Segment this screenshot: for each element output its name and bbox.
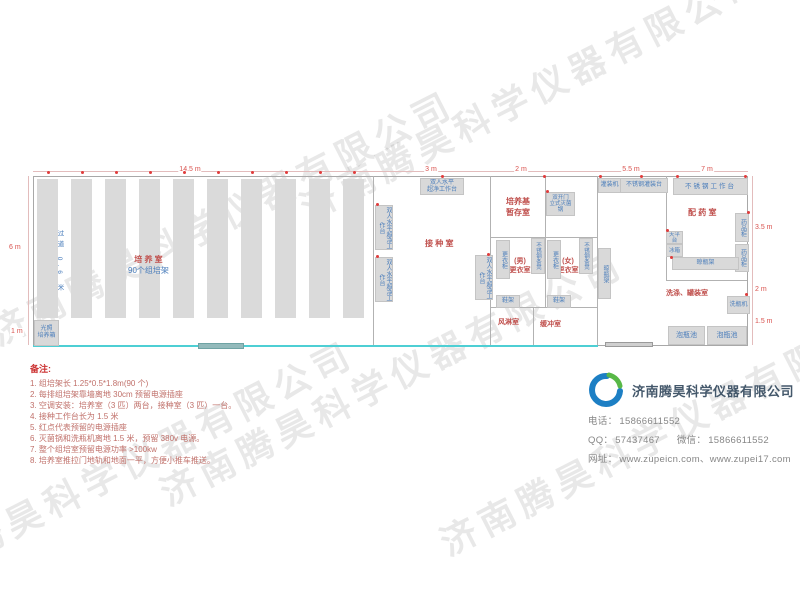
prep-room-label: 配 药 室 (688, 207, 716, 218)
note-item: 1. 组培架长 1.25*0.5*1.8m(90 个) (30, 378, 236, 389)
power-outlet-dot (543, 175, 546, 178)
power-outlet-dot (319, 171, 322, 174)
company-name: 济南腾昊科学仪器有限公司 (632, 381, 794, 400)
qq-label: QQ： (588, 435, 613, 446)
culture-rack (173, 179, 194, 318)
aisle-label: 过道 0.6 米 (54, 230, 64, 294)
note-item: 6. 灭菌锅和洗瓶机离地 1.5 米，预留 380v 电源。 (30, 433, 236, 444)
power-outlet-dot (81, 171, 84, 174)
bottle-dry-rack: 晾瓶架 (672, 257, 739, 270)
steel-worktable: 不锈钢工作台 (673, 178, 748, 195)
shoe-rack: 鞋架 (496, 295, 520, 308)
filling-table: 不锈钢灌装台 (620, 178, 668, 193)
glass-wall (33, 345, 598, 347)
power-outlet-dot (353, 171, 356, 174)
power-outlet-dot (115, 171, 118, 174)
power-outlet-dot (745, 293, 748, 296)
culture-rack (241, 179, 262, 318)
dim-label: 6 m (8, 244, 22, 252)
culture-room-label: 培 养 室 90个组培架 (128, 243, 169, 276)
floor-plan-sheet: 济南腾昊科学仪器有限公司 济南腾昊科学仪器有限公司 济南腾昊科学仪器有限公司 济… (0, 0, 800, 600)
company-block: 济南腾昊科学仪器有限公司 电话：15866611552 QQ：57437467 … (588, 372, 798, 465)
note-item: 3. 空调安装：培养室（3 匹）两台，接种室（3 匹）一台。 (30, 400, 236, 411)
dim-label: 1 m (10, 328, 24, 336)
power-outlet-dot (676, 175, 679, 178)
clean-bench: 双人水平超净工作台 (375, 257, 393, 302)
air-shower-label: 风淋室 (498, 318, 519, 327)
dim-label: 1.5 m (754, 318, 774, 326)
power-outlet-dot (285, 171, 288, 174)
dim-label: 3.5 m (754, 224, 774, 232)
phone-value: 15866611552 (619, 416, 680, 427)
culture-room-name: 培 养 室 (134, 255, 162, 264)
washing-room-label: 洗涤、罐装室 (666, 289, 708, 298)
clean-bench: 双人水平超净工作台 (475, 255, 493, 300)
medicine-cabinet: 药品柜 (735, 213, 749, 242)
bottle-dry-rack: 晾瓶架 (598, 248, 611, 299)
clean-bench: 双人水平 超净工作台 (420, 178, 464, 195)
power-outlet-dot (744, 175, 747, 178)
note-item: 2. 每排组培架靠墙离地 30cm 预留电源插座 (30, 389, 236, 400)
medium-storage-label: 培养基 暂存室 (498, 196, 538, 218)
wall (533, 307, 534, 345)
wechat-value: 15866611552 (708, 435, 769, 446)
lighted-incubator: 光照 培养箱 (34, 320, 59, 346)
notes-block: 备注: 1. 组培架长 1.25*0.5*1.8m(90 个) 2. 每排组培架… (30, 362, 236, 466)
culture-rack (309, 179, 330, 318)
steel-bench: 不锈钢条凳 (579, 238, 593, 274)
site-label: 网址： (588, 454, 617, 465)
buffer-room-label: 缓冲室 (540, 320, 561, 329)
power-outlet-dot (217, 171, 220, 174)
men-changing-room-label: (男) 更衣室 (506, 257, 534, 275)
qq-value: 57437467 (615, 435, 660, 446)
inoculation-room-label: 接 种 室 (425, 238, 453, 249)
culture-rack (207, 179, 228, 318)
power-outlet-dot (747, 211, 750, 214)
culture-rack (105, 179, 126, 318)
power-outlet-dot (376, 203, 379, 206)
sterilizer: 双开门 立式灭菌锅 (546, 192, 575, 216)
culture-rack (343, 179, 364, 318)
power-outlet-dot (666, 229, 669, 232)
power-outlet-dot (599, 175, 602, 178)
power-outlet-dot (546, 190, 549, 193)
wall (373, 176, 374, 345)
culture-rack (275, 179, 296, 318)
bottle-washer: 洗瓶机 (727, 296, 750, 314)
wall (666, 280, 747, 281)
soaking-pool: 泡瓶池 (707, 326, 747, 345)
sliding-door (198, 343, 244, 349)
power-outlet-dot (251, 171, 254, 174)
power-outlet-dot (640, 175, 643, 178)
dimension-line (28, 176, 29, 345)
company-phone: 电话：15866611552 (588, 413, 798, 427)
power-outlet-dot (670, 256, 673, 259)
door (605, 342, 653, 347)
dim-label: 5.5 m (621, 166, 641, 174)
power-outlet-dot (376, 255, 379, 258)
power-outlet-dot (183, 171, 186, 174)
notes-title: 备注: (30, 362, 236, 375)
power-outlet-dot (487, 253, 490, 256)
steel-bench: 不锈钢条凳 (531, 238, 545, 274)
culture-rack (71, 179, 92, 318)
note-item: 4. 接种工作台长为 1.5 米 (30, 411, 236, 422)
wechat-label: 微信： (677, 435, 706, 446)
shoe-rack: 鞋架 (547, 295, 571, 308)
dimension-line (752, 176, 753, 345)
dim-label: 2 m (754, 286, 768, 294)
floor-plan: 培 养 室 90个组培架 过道 0.6 米 光照 培养箱 接 种 室 双人水平 … (0, 0, 800, 600)
filling-machine: 灌装机 (598, 178, 621, 193)
power-outlet-dot (47, 171, 50, 174)
dim-label: 2 m (514, 166, 528, 174)
note-item: 8. 培养室推拉门地轨和地面一平，方便小推车推送。 (30, 455, 236, 466)
note-item: 7. 整个组培室预留电源功率 >100kw (30, 444, 236, 455)
soaking-pool: 泡瓶池 (668, 326, 705, 345)
company-qq-wechat: QQ：57437467 微信：15866611552 (588, 432, 798, 446)
company-logo-icon (588, 372, 624, 408)
note-item: 5. 红点代表预留的电源插座 (30, 422, 236, 433)
company-websites: 网址：www.zupeicn.com、www.zupei17.com (588, 451, 798, 465)
power-outlet-dot (441, 175, 444, 178)
balance-table: 天平台 (666, 231, 683, 244)
culture-room-sub: 90个组培架 (128, 266, 169, 275)
refrigerator: 冰箱 (666, 244, 683, 257)
dim-label: 7 m (700, 166, 714, 174)
clean-bench: 双人水平超净工作台 (375, 205, 393, 250)
phone-label: 电话： (588, 416, 617, 427)
dim-label: 14.5 m (178, 166, 201, 174)
site-value: www.zupeicn.com、www.zupei17.com (619, 454, 790, 465)
locker: 更衣柜 (547, 240, 561, 279)
locker: 更衣柜 (496, 240, 510, 279)
power-outlet-dot (149, 171, 152, 174)
dim-label: 3 m (424, 166, 438, 174)
